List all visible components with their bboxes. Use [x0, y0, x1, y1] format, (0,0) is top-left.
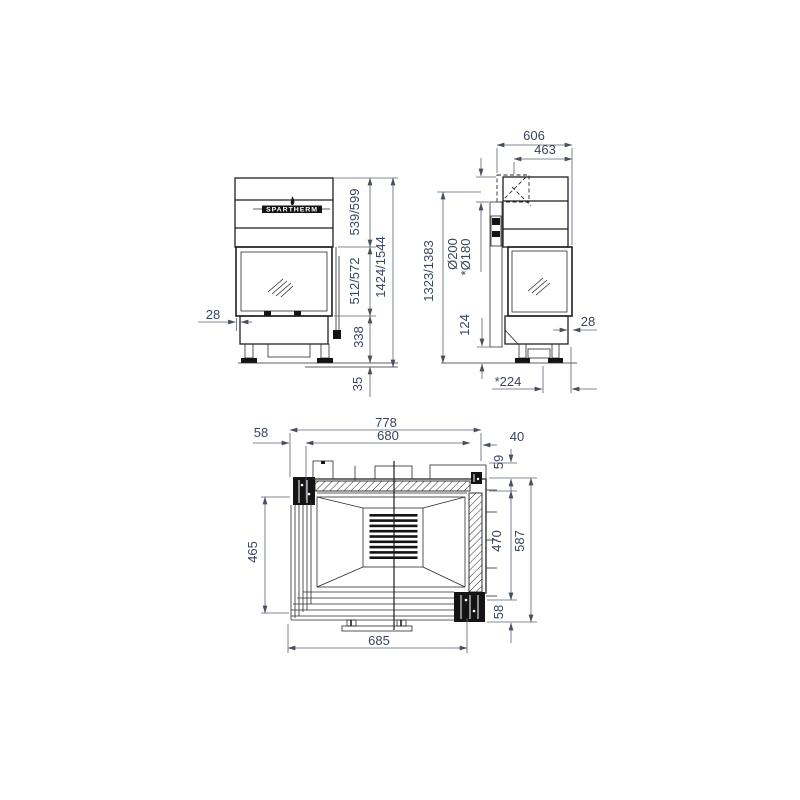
plan-dimensions: 778 58 680 40 59 470 58 587 [245, 415, 537, 653]
foot-pad [241, 358, 257, 363]
side-glass-door [508, 247, 572, 316]
front-glass-frame [291, 592, 455, 620]
foot-pad [548, 358, 563, 363]
door-latch [294, 311, 301, 316]
dim-front-foot-height: 35 [350, 377, 365, 391]
dim-plan-side-glass-depth: 465 [245, 541, 260, 563]
dim-plan-inner-depth: 470 [489, 530, 504, 552]
dim-side-foot-depth: *224 [495, 374, 522, 389]
dim-side-depth: 606 [523, 128, 545, 143]
front-base [240, 316, 333, 363]
glass-reflection [268, 279, 293, 297]
right-wall-hatch [469, 493, 482, 592]
front-side-frame-strip [333, 247, 341, 339]
bottom-mounting-feet [342, 620, 412, 631]
dim-side-flue-center: 463 [534, 142, 556, 157]
side-base [505, 316, 568, 363]
dim-plan-front-offset: 58 [491, 605, 506, 619]
fireplace-technical-drawing: SPARTHERM [0, 0, 800, 800]
dim-plan-front-glass-width: 685 [368, 633, 390, 648]
side-dimensions: 606 463 Ø200 *Ø180 1323/1383 124 28 [421, 128, 597, 393]
dim-flue-diameter-alt: *Ø180 [458, 239, 473, 276]
dim-side-flue-height: 1323/1383 [421, 240, 436, 301]
dim-plan-overall-depth: 587 [512, 530, 527, 552]
drawing-svg: SPARTHERM [0, 0, 800, 800]
corner-hardware-bottom-right [454, 592, 485, 622]
dim-plan-inner-width: 680 [377, 428, 399, 443]
dim-plan-left-offset: 58 [254, 425, 268, 440]
rear-wall-hatch [315, 481, 470, 491]
side-view: 606 463 Ø200 *Ø180 1323/1383 124 28 [421, 128, 597, 393]
dim-front-base-height: 338 [351, 326, 366, 348]
dim-front-total-height: 1424/1544 [373, 236, 388, 297]
dim-plan-rear-offset: 59 [491, 455, 506, 469]
flame-icon [291, 196, 295, 205]
rear-convection-channel [490, 202, 502, 347]
dim-front-hood-height: 539/599 [347, 189, 362, 236]
corner-hardware-top-left [293, 477, 315, 505]
brand-logo: SPARTHERM [253, 196, 330, 213]
dim-side-overhang: 28 [581, 314, 595, 329]
plan-view: 778 58 680 40 59 470 58 587 [245, 415, 537, 653]
left-glass-frame [291, 500, 311, 620]
rear-connection-stubs [313, 461, 486, 484]
dim-front-glass-height: 512/572 [347, 258, 362, 305]
brand-text: SPARTHERM [266, 207, 318, 213]
foot-pad [515, 358, 530, 363]
front-glass-door [236, 247, 332, 316]
dim-side-plinth-height: 124 [457, 314, 472, 336]
door-latch [264, 311, 271, 316]
dim-plan-right-offset: 40 [510, 429, 524, 444]
glass-reflection [528, 278, 550, 295]
foot-pad [317, 358, 333, 363]
dim-front-overhang: 28 [206, 307, 220, 322]
front-view: SPARTHERM [198, 178, 398, 397]
